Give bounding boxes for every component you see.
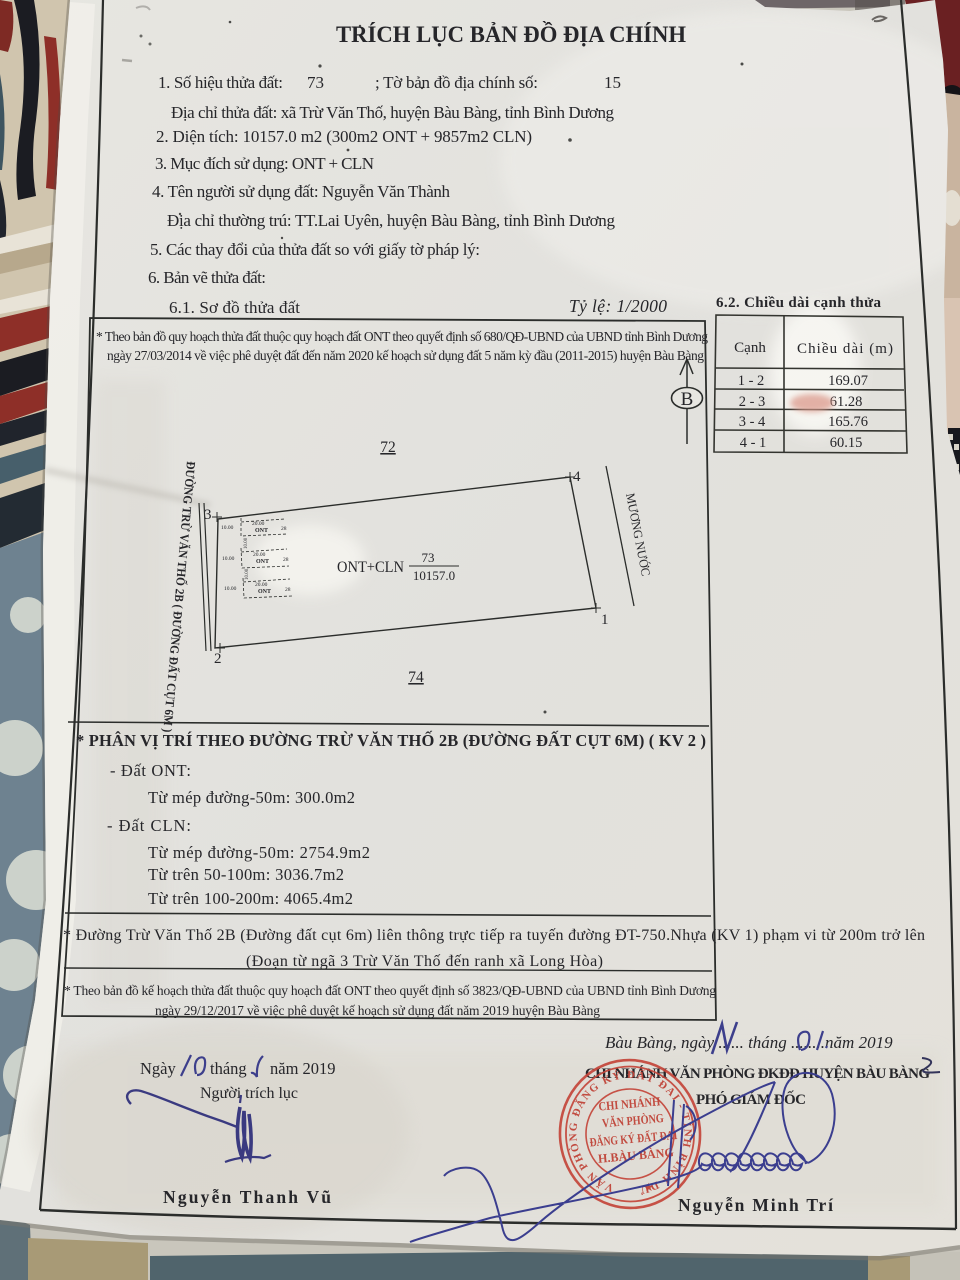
svg-text:ngày 29/12/2017 về việc phê du: ngày 29/12/2017 về việc phê duyệt kế hoạ… [155, 1003, 600, 1018]
svg-text:Người trích lục: Người trích lục [200, 1085, 298, 1102]
svg-text:Ngày: Ngày [140, 1059, 176, 1078]
svg-text:3: 3 [204, 507, 212, 523]
svg-text:28: 28 [281, 526, 287, 532]
svg-text:- Đất ONT:: - Đất ONT: [110, 761, 191, 780]
svg-text:ONT: ONT [256, 559, 269, 565]
svg-text:4. Tên người sử dụng đất: Nguy: 4. Tên người sử dụng đất: Nguyễn Văn Thà… [152, 182, 451, 201]
svg-text:10.00: 10.00 [224, 586, 237, 592]
svg-text:* Theo bản đồ quy hoạch thửa đ: * Theo bản đồ quy hoạch thửa đất thuộc q… [96, 329, 708, 344]
svg-text:Từ trên 50-100m: 3036.7m2: Từ trên 50-100m: 3036.7m2 [148, 865, 344, 884]
svg-text:28: 28 [283, 557, 289, 563]
svg-text:10.00: 10.00 [245, 568, 250, 580]
svg-text:10.00: 10.00 [221, 525, 234, 531]
svg-text:TRÍCH LỤC BẢN ĐỒ ĐỊA CHÍNH: TRÍCH LỤC BẢN ĐỒ ĐỊA CHÍNH [336, 21, 686, 47]
svg-text:10.00: 10.00 [244, 537, 249, 549]
svg-text:20.00: 20.00 [252, 521, 265, 527]
svg-text:Từ mép đường-50m: 300.0m2: Từ mép đường-50m: 300.0m2 [148, 788, 355, 807]
svg-text:- Đất CLN:: - Đất CLN: [107, 816, 191, 835]
svg-text:73: 73 [307, 73, 324, 92]
svg-text:60.15: 60.15 [830, 435, 863, 451]
svg-text:6. Bản vẽ thửa đất:: 6. Bản vẽ thửa đất: [148, 268, 266, 287]
svg-text:Tỷ lệ: 1/2000: Tỷ lệ: 1/2000 [569, 296, 667, 316]
svg-text:3 - 4: 3 - 4 [739, 414, 766, 430]
svg-text:20.00: 20.00 [255, 582, 268, 588]
svg-text:năm 2019: năm 2019 [270, 1059, 336, 1078]
svg-text:6.1. Sơ đồ thửa đất: 6.1. Sơ đồ thửa đất [169, 298, 300, 317]
svg-text:ngày 27/03/2014 về việc phê du: ngày 27/03/2014 về việc phê duyệt đất đế… [107, 348, 704, 363]
svg-text:3. Mục đích sử dụng: ONT + CLN: 3. Mục đích sử dụng: ONT + CLN [155, 154, 374, 173]
svg-text:15: 15 [604, 73, 621, 92]
svg-text:61.28: 61.28 [830, 394, 863, 410]
svg-text:Nguyễn Thanh Vũ: Nguyễn Thanh Vũ [163, 1187, 331, 1207]
svg-text:* Đường Trừ Văn Thố 2B (Đường: * Đường Trừ Văn Thố 2B (Đường đất cụt 6m… [63, 927, 925, 944]
svg-text:B: B [681, 389, 694, 410]
svg-text:4: 4 [573, 469, 581, 485]
svg-text:Địa chỉ thửa đất: xã Trừ Văn T: Địa chỉ thửa đất: xã Trừ Văn Thố, huyện … [171, 103, 615, 122]
svg-text:1 - 2: 1 - 2 [738, 373, 765, 389]
svg-text:165.76: 165.76 [828, 414, 868, 430]
svg-text:ONT: ONT [255, 528, 268, 534]
svg-text:10157.0: 10157.0 [413, 568, 455, 583]
svg-text:6.2. Chiều dài cạnh thửa: 6.2. Chiều dài cạnh thửa [716, 295, 882, 311]
svg-text:Từ trên 100-200m: 4065.4m2: Từ trên 100-200m: 4065.4m2 [148, 889, 353, 908]
svg-text:; Tờ bản đồ địa chính số:: ; Tờ bản đồ địa chính số: [375, 73, 538, 92]
svg-text:10.00: 10.00 [222, 556, 235, 562]
svg-text:169.07: 169.07 [828, 373, 868, 389]
svg-text:tháng: tháng [210, 1059, 247, 1078]
svg-text:Từ mép đường-50m: 2754.9m2: Từ mép đường-50m: 2754.9m2 [148, 843, 370, 862]
svg-text:2. Diện tích: 10157.0 m2 (300m: 2. Diện tích: 10157.0 m2 (300m2 ONT + 98… [156, 127, 532, 146]
svg-text:4 - 1: 4 - 1 [740, 435, 767, 451]
svg-text:Chiều dài (m): Chiều dài (m) [797, 341, 893, 357]
svg-text:ONT+CLN: ONT+CLN [337, 559, 404, 576]
svg-text:5. Các thay đổi của thửa đất s: 5. Các thay đổi của thửa đất so với giấy… [150, 240, 480, 259]
svg-text:1: 1 [601, 612, 609, 628]
svg-text:(Đoạn từ ngã 3 Trừ Văn Thố đến: (Đoạn từ ngã 3 Trừ Văn Thố đến ranh xã L… [246, 953, 603, 970]
svg-text:ONT: ONT [258, 589, 271, 595]
svg-text:* PHÂN VỊ TRÍ THEO ĐƯỜNG TRỪ V: * PHÂN VỊ TRÍ THEO ĐƯỜNG TRỪ VĂN THỐ 2B … [76, 730, 706, 750]
svg-text:73: 73 [422, 550, 435, 565]
svg-text:1. Số hiệu thửa đất:: 1. Số hiệu thửa đất: [158, 73, 283, 92]
svg-text:72: 72 [380, 439, 396, 456]
svg-text:Địa chỉ thường trú: TT.Lai Uy: Địa chỉ thường trú: TT.Lai Uyên, huyện B… [167, 211, 616, 230]
svg-text:* Theo bản đồ kế hoạch thửa đấ: * Theo bản đồ kế hoạch thửa đất thuộc qu… [64, 983, 716, 998]
svg-text:2: 2 [214, 651, 222, 667]
svg-text:Bàu Bàng, ngày ...... tháng ..: Bàu Bàng, ngày ...... tháng ........năm … [605, 1033, 893, 1052]
svg-text:2 - 3: 2 - 3 [739, 394, 766, 410]
svg-text:Cạnh: Cạnh [734, 340, 766, 356]
svg-text:74: 74 [408, 669, 424, 686]
svg-text:20.00: 20.00 [253, 552, 266, 558]
svg-text:28: 28 [285, 587, 291, 593]
